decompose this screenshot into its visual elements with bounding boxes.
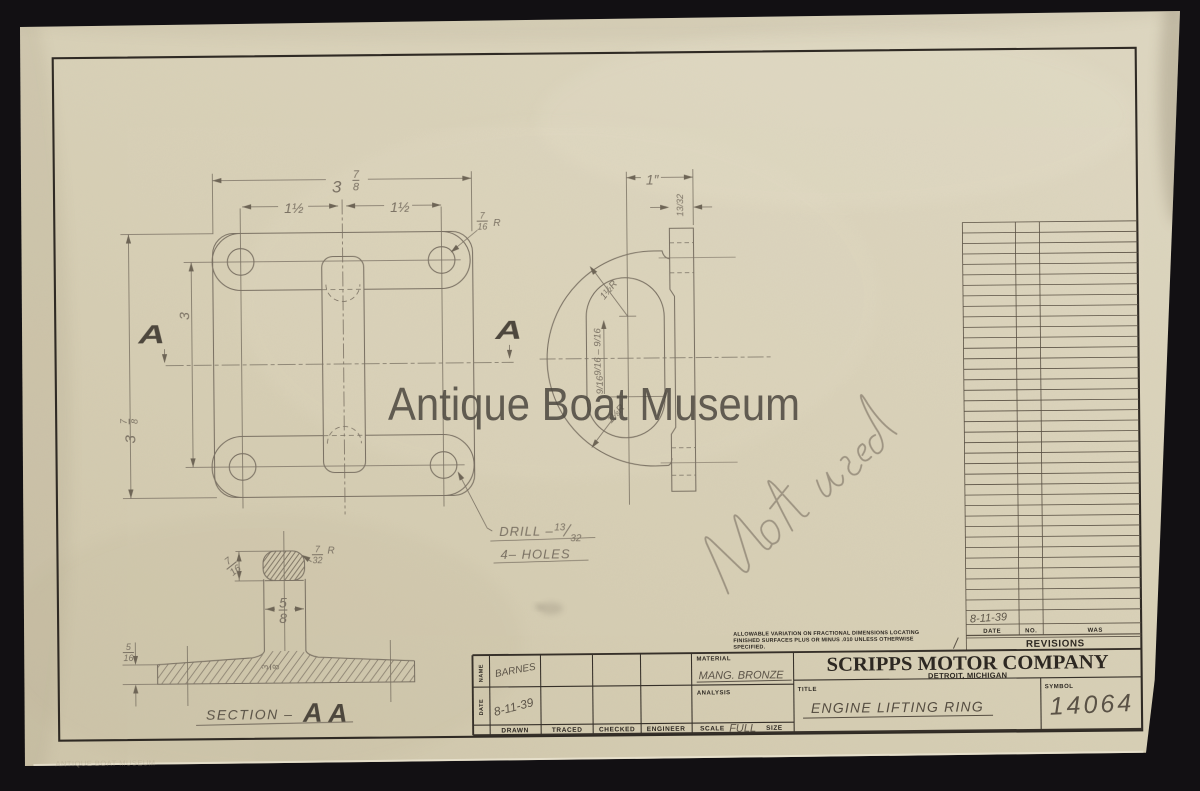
svg-text:A: A: [137, 320, 165, 350]
svg-text:TRACED: TRACED: [552, 727, 583, 734]
svg-text:TITLE: TITLE: [798, 687, 817, 693]
svg-text:WAS: WAS: [1088, 628, 1103, 634]
svg-text:5: 5: [279, 595, 287, 611]
svg-text:8: 8: [353, 181, 360, 193]
svg-text:7: 7: [353, 169, 360, 181]
svg-text:3: 3: [122, 434, 139, 443]
svg-text:4– HOLES: 4– HOLES: [500, 546, 570, 562]
svg-text:SIZE: SIZE: [766, 725, 783, 732]
svg-text:14064: 14064: [1049, 689, 1135, 721]
svg-text:8: 8: [271, 665, 281, 670]
svg-text:R: R: [493, 218, 500, 229]
svg-text:NAME: NAME: [479, 664, 485, 682]
svg-text:A: A: [494, 315, 522, 345]
svg-text:DRILL –: DRILL –: [499, 523, 554, 539]
svg-text:3: 3: [176, 312, 192, 320]
svg-text:ANTIQUE BOAT MUSEUM: ANTIQUE BOAT MUSEUM: [55, 758, 155, 768]
svg-text:A: A: [327, 698, 348, 728]
svg-text:9/16 – 9/16: 9/16 – 9/16: [592, 327, 603, 375]
svg-text:3: 3: [260, 665, 270, 670]
svg-text:1½: 1½: [390, 199, 410, 215]
svg-text:DRAWN: DRAWN: [501, 727, 529, 734]
svg-text:FULL: FULL: [729, 723, 756, 735]
svg-text:SCALE: SCALE: [700, 725, 725, 732]
svg-text:1½: 1½: [284, 200, 304, 216]
svg-text:MATERIAL: MATERIAL: [696, 656, 731, 662]
svg-text:CHECKED: CHECKED: [599, 726, 635, 733]
svg-text:8-11-39: 8-11-39: [970, 611, 1008, 625]
svg-text:ANALYSIS: ANALYSIS: [697, 690, 731, 696]
svg-text:Antique Boat Museum: Antique Boat Museum: [388, 378, 800, 430]
svg-text:DATE: DATE: [983, 629, 1001, 635]
svg-text:SPECIFIED.: SPECIFIED.: [733, 644, 765, 650]
svg-text:8: 8: [129, 419, 139, 424]
svg-text:SECTION –: SECTION –: [206, 706, 294, 723]
svg-text:16: 16: [477, 221, 487, 231]
svg-text:REVISIONS: REVISIONS: [1026, 638, 1085, 650]
svg-text:3: 3: [332, 177, 342, 196]
svg-text:8: 8: [279, 610, 287, 626]
svg-text:32: 32: [312, 555, 322, 565]
svg-text:13: 13: [554, 522, 566, 533]
svg-text:SYMBOL: SYMBOL: [1045, 684, 1074, 690]
svg-text:NO.: NO.: [1025, 628, 1037, 634]
svg-text:13/32: 13/32: [675, 194, 685, 217]
svg-text:DETROIT, MICHIGAN: DETROIT, MICHIGAN: [928, 671, 1007, 681]
svg-text:16: 16: [123, 653, 133, 663]
svg-text:DATE: DATE: [479, 699, 485, 716]
svg-text:R: R: [327, 546, 334, 557]
svg-text:ENGINEER: ENGINEER: [647, 726, 686, 733]
svg-text:32: 32: [570, 533, 582, 544]
svg-text:ENGINE LIFTING RING: ENGINE LIFTING RING: [811, 698, 984, 716]
svg-text:1″: 1″: [646, 171, 660, 187]
